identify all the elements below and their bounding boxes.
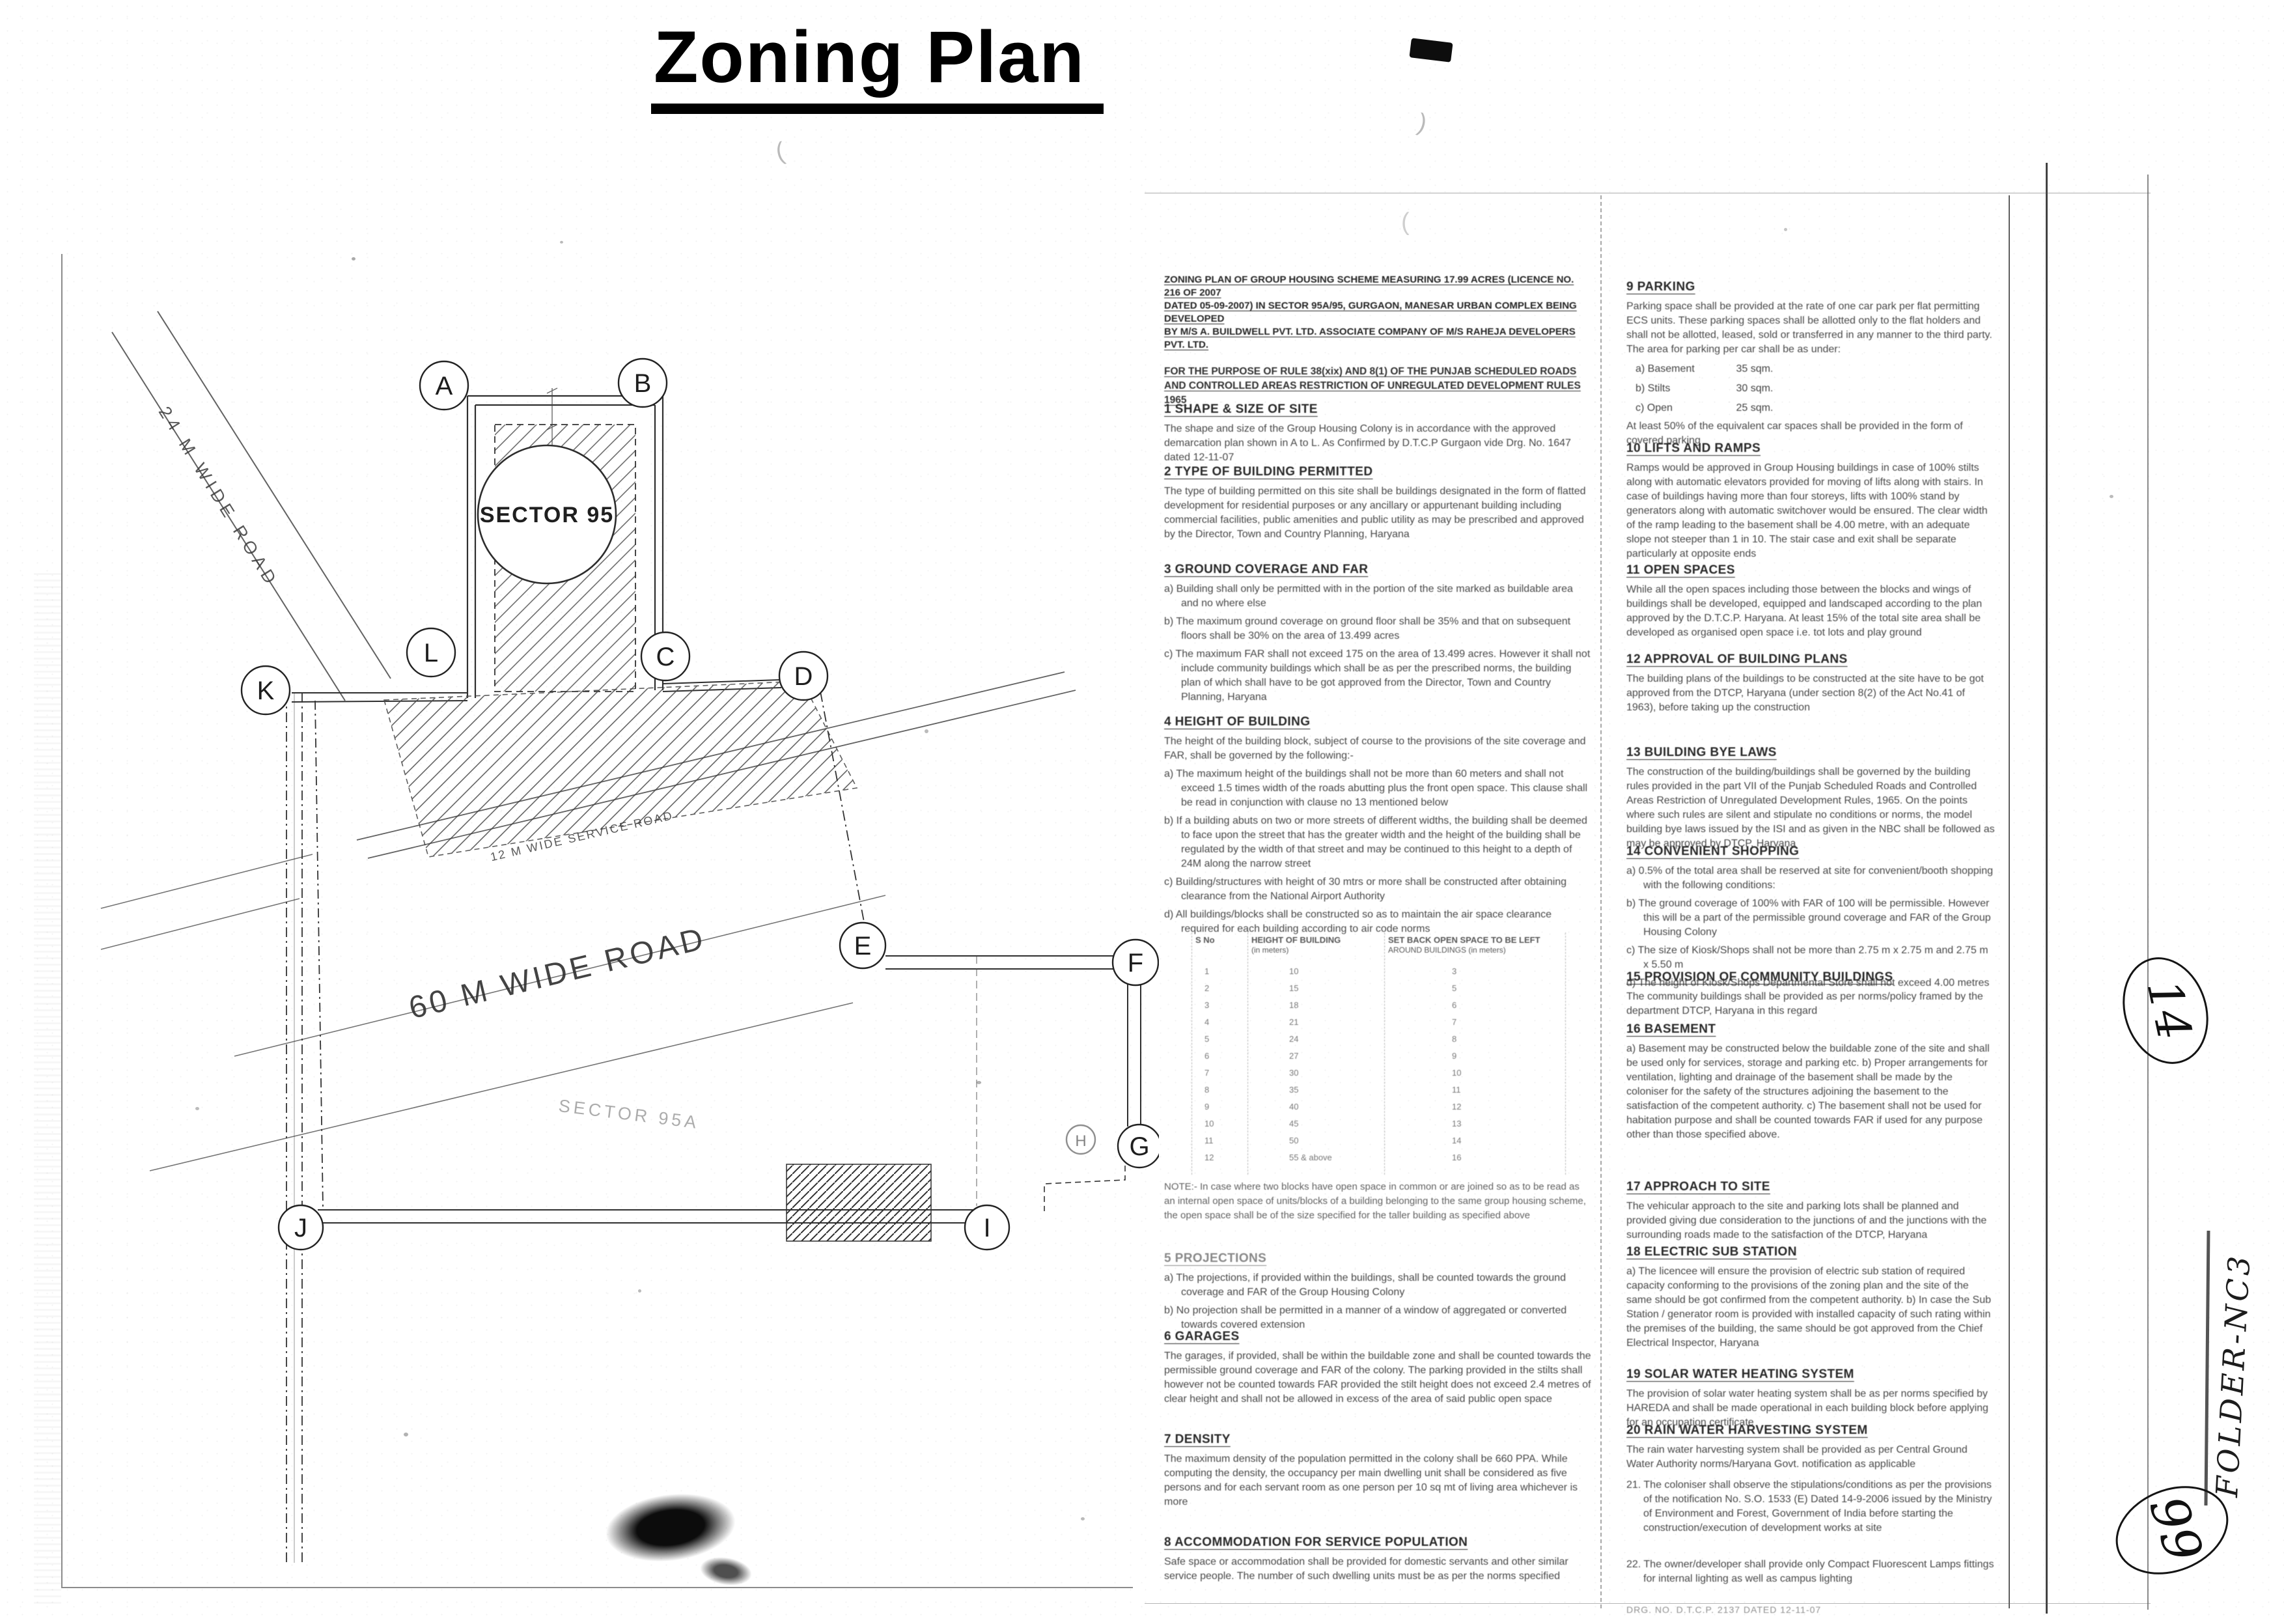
row-serial: 11 <box>1205 1136 1214 1145</box>
sheet-top-rule <box>1145 193 2151 193</box>
alt-number-handwritten: 99 <box>2138 1489 2213 1569</box>
section-open-spaces: 11 OPEN SPACES While all the open spaces… <box>1626 563 1995 644</box>
section-density: 7 DENSITY The maximum density of the pop… <box>1164 1433 1593 1513</box>
row-height: 40 <box>1289 1102 1298 1112</box>
section-body: Safe space or accommodation shall be pro… <box>1164 1555 1593 1584</box>
license-header-line: ZONING PLAN OF GROUP HOUSING SCHEME MEAS… <box>1164 273 1593 300</box>
section-heading: 17 APPROACH TO SITE <box>1626 1180 1995 1194</box>
row-height: 24 <box>1289 1034 1298 1044</box>
section-heading: 12 APPROVAL OF BUILDING PLANS <box>1626 652 1995 667</box>
clause-item: c) The size of Kiosk/Shops shall not be … <box>1626 944 1995 972</box>
clause-item: a) The maximum height of the buildings s… <box>1164 767 1593 810</box>
page-title: Zoning Plan <box>651 17 1104 114</box>
section-heading: 10 LIFTS AND RAMPS <box>1626 441 1995 456</box>
folder-label-handwritten: FOLDER-NC3 <box>2209 1252 2257 1499</box>
section-heading: 1 SHAPE & SIZE OF SITE <box>1164 402 1593 417</box>
site-boundary-lines <box>885 956 1141 1127</box>
clause-item: c) Building/structures with height of 30… <box>1164 875 1593 904</box>
table-header-cell: HEIGHT OF BUILDING (in meters) <box>1251 935 1382 955</box>
road-60m-lines <box>101 854 885 1171</box>
clause-22: 22. The owner/developer shall provide on… <box>1626 1558 1995 1590</box>
road-60m-label: 60 M WIDE ROAD <box>406 921 710 1026</box>
setback-table: S No HEIGHT OF BUILDING (in meters) SET … <box>1191 932 1567 1175</box>
scan-pen-mark: ( <box>773 137 787 167</box>
clause-item: b) No projection shall be permitted in a… <box>1164 1304 1593 1332</box>
row-serial: 10 <box>1205 1119 1214 1128</box>
section-body: While all the open spaces including thos… <box>1626 583 1995 640</box>
row-serial: 1 <box>1205 966 1209 976</box>
boundary-letter: B <box>634 369 652 398</box>
drawing-number: DRG. NO. D.T.C.P. 2137 DATED 12-11-07 <box>1626 1604 1995 1615</box>
section-body: The community buildings shall be provide… <box>1626 990 1995 1018</box>
section-body: The building plans of the buildings to b… <box>1626 672 1995 715</box>
boundary-letter: A <box>436 372 453 400</box>
section-parking: 9 PARKING Parking space shall be provide… <box>1626 280 1995 452</box>
parking-rate-row: c) Open 25 sqm. <box>1636 400 1995 417</box>
row-setback: 14 <box>1452 1136 1461 1145</box>
site-boundary-step <box>1044 1156 1125 1211</box>
license-header-line: BY M/S A. BUILDWELL PVT. LTD. ASSOCIATE … <box>1164 326 1593 352</box>
row-height: 21 <box>1289 1017 1298 1027</box>
sector-95-label: SECTOR 95 <box>480 503 614 527</box>
section-lifts-ramps: 10 LIFTS AND RAMPS Ramps would be approv… <box>1626 441 1995 565</box>
section-heading: 11 OPEN SPACES <box>1626 563 1995 578</box>
section-approach-to-site: 17 APPROACH TO SITE The vehicular approa… <box>1626 1180 1995 1246</box>
table-header-sub: (in meters) <box>1251 945 1288 955</box>
section-heading: 18 ELECTRIC SUB STATION <box>1626 1245 1995 1259</box>
note-text: NOTE:- In case where two blocks have ope… <box>1164 1180 1593 1223</box>
row-serial: 9 <box>1205 1102 1209 1112</box>
section-body: The shape and size of the Group Housing … <box>1164 422 1593 465</box>
row-setback: 16 <box>1452 1153 1461 1162</box>
parking-rate-row: b) Stilts 30 sqm. <box>1636 380 1995 397</box>
table-rows: 1 10 3 2 15 5 3 18 6 4 21 <box>1191 966 1567 1169</box>
section-body: The rain water harvesting system shall b… <box>1626 1443 1995 1472</box>
section-heading: 13 BUILDING BYE LAWS <box>1626 746 1995 760</box>
section-heading: 5 PROJECTIONS <box>1164 1252 1593 1266</box>
section-body: a) The licencee will ensure the provisio… <box>1626 1265 1995 1351</box>
section-heading: 15 PROVISION OF COMMUNITY BUILDINGS <box>1626 970 1995 985</box>
row-setback: 13 <box>1452 1119 1461 1128</box>
table-header-cell: SET BACK OPEN SPACE TO BE LEFT AROUND BU… <box>1388 935 1561 955</box>
table-row: 6 27 9 <box>1191 1051 1567 1068</box>
row-setback: 8 <box>1452 1034 1456 1044</box>
zoning-clauses-column-right: 9 PARKING Parking space shall be provide… <box>1626 273 1995 1608</box>
boundary-letter: C <box>656 643 675 671</box>
section-body: The maximum density of the population pe… <box>1164 1452 1593 1509</box>
table-header-text: SET BACK OPEN SPACE TO BE LEFT <box>1388 935 1540 945</box>
section-community-buildings: 15 PROVISION OF COMMUNITY BUILDINGS The … <box>1626 970 1995 1022</box>
section-rain-water-harvesting: 20 RAIN WATER HARVESTING SYSTEM The rain… <box>1626 1423 1995 1476</box>
section-heading: 7 DENSITY <box>1164 1433 1593 1447</box>
road-24m-lines <box>112 311 391 701</box>
section-approval-building-plans: 12 APPROVAL OF BUILDING PLANS The buildi… <box>1626 652 1995 719</box>
table-header-sub: AROUND BUILDINGS (in meters) <box>1388 945 1506 955</box>
table-header-cell: S No <box>1195 935 1244 945</box>
table-row: 2 15 5 <box>1191 983 1567 1000</box>
boundary-letter: H <box>1075 1132 1086 1150</box>
section-body: The garages, if provided, shall be withi… <box>1164 1349 1593 1407</box>
section-heading: 14 CONVENIENT SHOPPING <box>1626 845 1995 859</box>
row-serial: 2 <box>1205 983 1209 993</box>
clause-item: b) If a building abuts on two or more st… <box>1164 814 1593 871</box>
row-setback: 11 <box>1452 1085 1461 1095</box>
row-height: 45 <box>1289 1119 1298 1128</box>
clause-item: b) The maximum ground coverage on ground… <box>1164 615 1593 643</box>
section-heading: 8 ACCOMMODATION FOR SERVICE POPULATION <box>1164 1535 1593 1550</box>
buildable-area-hatch-bottom <box>787 1164 931 1241</box>
table-row: 5 24 8 <box>1191 1034 1567 1051</box>
row-setback: 3 <box>1452 966 1456 976</box>
clause-item: 21. The coloniser shall observe the stip… <box>1626 1478 1995 1535</box>
section-heading: 19 SOLAR WATER HEATING SYSTEM <box>1626 1367 1995 1382</box>
parking-rate-label: a) Basement <box>1636 361 1733 378</box>
scanned-zoning-plan-sheet: { "title": "Zoning Plan", "plan": { "let… <box>0 0 2284 1615</box>
boundary-letter: I <box>983 1214 990 1242</box>
section-electric-substation: 18 ELECTRIC SUB STATION a) The licencee … <box>1626 1245 1995 1354</box>
section-heading: 6 GARAGES <box>1164 1330 1593 1344</box>
handwritten-margin-marks: 14 FOLDER-NC3 99 <box>2110 925 2284 1615</box>
table-row: 7 30 10 <box>1191 1068 1567 1085</box>
boundary-letter: D <box>794 662 813 691</box>
license-header-line: DATED 05-09-2007) IN SECTOR 95A/95, GURG… <box>1164 300 1593 326</box>
section-shape-size: 1 SHAPE & SIZE OF SITE The shape and siz… <box>1164 402 1593 469</box>
clause-item: 22. The owner/developer shall provide on… <box>1626 1558 1995 1586</box>
section-building-bye-laws: 13 BUILDING BYE LAWS The construction of… <box>1626 746 1995 855</box>
row-serial: 12 <box>1205 1153 1214 1162</box>
section-body: The type of building permitted on this s… <box>1164 484 1593 542</box>
section-type-of-building: 2 TYPE OF BUILDING PERMITTED The type of… <box>1164 465 1593 546</box>
sector-95a-label: SECTOR 95A <box>557 1096 701 1132</box>
page-number-handwritten: 14 <box>2136 975 2202 1044</box>
clause-item: a) 0.5% of the total area shall be reser… <box>1626 864 1995 893</box>
row-serial: 4 <box>1205 1017 1209 1027</box>
section-heading: 20 RAIN WATER HARVESTING SYSTEM <box>1626 1423 1995 1438</box>
table-row: 11 50 14 <box>1191 1136 1567 1153</box>
zoning-clauses-column-left: ZONING PLAN OF GROUP HOUSING SCHEME MEAS… <box>1164 273 1593 1595</box>
section-ground-coverage-far: 3 GROUND COVERAGE AND FAR a) Building sh… <box>1164 563 1593 708</box>
table-note: NOTE:- In case where two blocks have ope… <box>1164 1180 1593 1227</box>
row-setback: 7 <box>1452 1017 1456 1027</box>
boundary-letter: J <box>294 1214 307 1242</box>
section-heading: 2 TYPE OF BUILDING PERMITTED <box>1164 465 1593 479</box>
purpose-line: FOR THE PURPOSE OF RULE 38(xix) AND 8(1)… <box>1164 365 1593 379</box>
clause-21: 21. The coloniser shall observe the stip… <box>1626 1478 1995 1539</box>
table-row: 10 45 13 <box>1191 1119 1567 1136</box>
table-row: 1 10 3 <box>1191 966 1567 983</box>
section-body: The height of the building block, subjec… <box>1164 735 1593 763</box>
table-row: 12 55 & above 16 <box>1191 1153 1567 1169</box>
boundary-letter: K <box>257 677 275 705</box>
section-service-population: 8 ACCOMMODATION FOR SERVICE POPULATION S… <box>1164 1535 1593 1588</box>
drawing-number-line: DRG. NO. D.T.C.P. 2137 DATED 12-11-07 <box>1626 1595 1995 1624</box>
row-setback: 12 <box>1452 1102 1461 1112</box>
scan-pen-mark: ) <box>1415 109 1430 138</box>
scan-pen-mark: ( <box>1401 208 1410 236</box>
row-serial: 8 <box>1205 1085 1209 1095</box>
parking-rate-row: a) Basement 35 sqm. <box>1636 361 1995 378</box>
section-height-of-building: 4 HEIGHT OF BUILDING The height of the b… <box>1164 715 1593 940</box>
scan-speck <box>2110 495 2113 498</box>
parking-rate-label: c) Open <box>1636 400 1733 417</box>
pen-stroke <box>2206 1231 2208 1505</box>
parking-rate-value: 35 sqm. <box>1736 363 1773 374</box>
row-serial: 6 <box>1205 1051 1209 1061</box>
row-height: 18 <box>1289 1000 1298 1010</box>
scan-ink-mark <box>1409 38 1453 63</box>
table-header: S No HEIGHT OF BUILDING (in meters) SET … <box>1191 932 1567 962</box>
table-row: 9 40 12 <box>1191 1102 1567 1119</box>
section-heading: 3 GROUND COVERAGE AND FAR <box>1164 563 1593 577</box>
row-serial: 7 <box>1205 1068 1209 1078</box>
clause-item: a) The projections, if provided within t… <box>1164 1271 1593 1300</box>
left-road-lines <box>286 693 302 1563</box>
boundary-letter: E <box>854 932 872 960</box>
section-body: The construction of the building/buildin… <box>1626 765 1995 851</box>
row-height: 50 <box>1289 1136 1298 1145</box>
row-setback: 10 <box>1452 1068 1461 1078</box>
section-body: Parking space shall be provided at the r… <box>1626 300 1995 357</box>
parking-rate-value: 30 sqm. <box>1736 383 1773 394</box>
row-height: 27 <box>1289 1051 1298 1061</box>
boundary-letter: G <box>1129 1132 1149 1161</box>
scan-speck <box>1784 228 1787 231</box>
row-setback: 9 <box>1452 1051 1456 1061</box>
table-row: 8 35 11 <box>1191 1085 1567 1102</box>
clause-item: b) The ground coverage of 100% with FAR … <box>1626 897 1995 940</box>
parking-rate-value: 25 sqm. <box>1736 402 1773 413</box>
table-row: 4 21 7 <box>1191 1017 1567 1034</box>
sheet-fold-line <box>2046 163 2048 1614</box>
row-height: 55 & above <box>1289 1153 1332 1162</box>
section-heading: 4 HEIGHT OF BUILDING <box>1164 715 1593 729</box>
section-body: Ramps would be approved in Group Housing… <box>1626 461 1995 561</box>
sheet-fold-line <box>2009 195 2010 1608</box>
row-serial: 5 <box>1205 1034 1209 1044</box>
clause-item: a) Building shall only be permitted with… <box>1164 582 1593 611</box>
table-row: 3 18 6 <box>1191 1000 1567 1017</box>
section-body: The vehicular approach to the site and p… <box>1626 1199 1995 1242</box>
boundary-letter: F <box>1128 949 1143 977</box>
row-serial: 3 <box>1205 1000 1209 1010</box>
clause-item: c) The maximum FAR shall not exceed 175 … <box>1164 647 1593 705</box>
road-24m-label: 24 M WIDE ROAD <box>155 403 283 591</box>
table-header-text: HEIGHT OF BUILDING <box>1251 935 1341 945</box>
section-heading: 16 BASEMENT <box>1626 1022 1995 1037</box>
row-setback: 6 <box>1452 1000 1456 1010</box>
section-projections: 5 PROJECTIONS a) The projections, if pro… <box>1164 1252 1593 1336</box>
license-header: ZONING PLAN OF GROUP HOUSING SCHEME MEAS… <box>1164 273 1593 352</box>
purpose-statement: FOR THE PURPOSE OF RULE 38(xix) AND 8(1)… <box>1164 365 1593 408</box>
section-basement: 16 BASEMENT a) Basement may be construct… <box>1626 1022 1995 1146</box>
row-height: 10 <box>1289 966 1298 976</box>
row-height: 30 <box>1289 1068 1298 1078</box>
section-garages: 6 GARAGES The garages, if provided, shal… <box>1164 1330 1593 1410</box>
row-setback: 5 <box>1452 983 1456 993</box>
site-plan-drawing: 24 M WIDE ROAD SECTOR 95 12 M WIDE SERVI… <box>39 234 1159 1615</box>
row-height: 35 <box>1289 1085 1298 1095</box>
parking-rate-label: b) Stilts <box>1636 380 1733 397</box>
section-heading: 9 PARKING <box>1626 280 1995 294</box>
row-height: 15 <box>1289 983 1298 993</box>
boundary-letter: L <box>424 639 438 667</box>
column-divider-line <box>1600 195 1602 1608</box>
section-body: a) Basement may be constructed below the… <box>1626 1042 1995 1142</box>
